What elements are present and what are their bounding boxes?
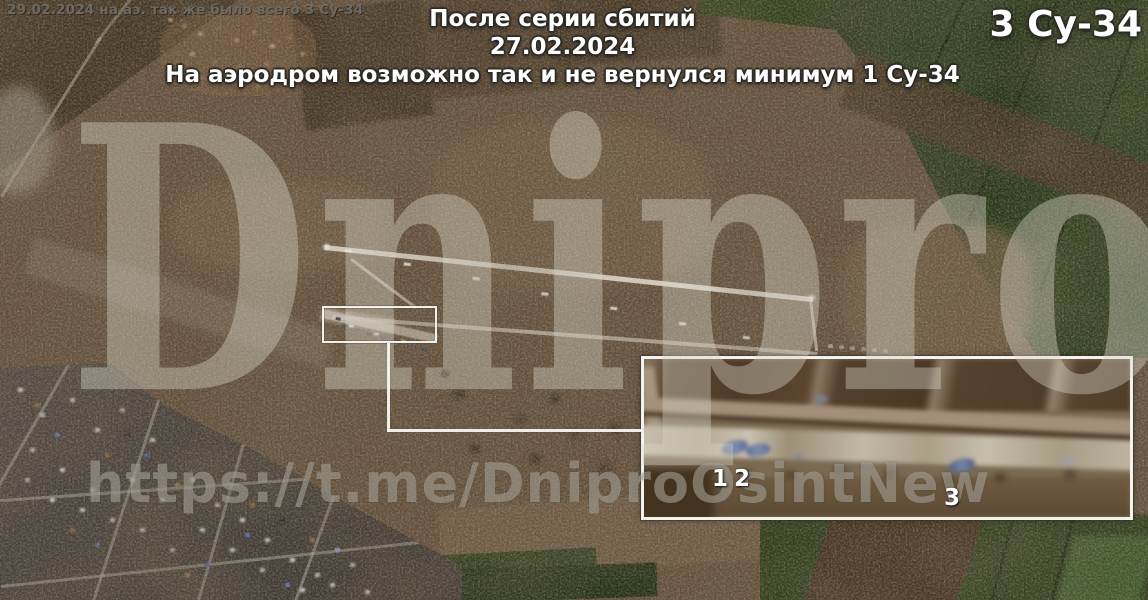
dnipro-watermark: Dnipro [68, 78, 1148, 444]
inset-label-2: 2 [734, 466, 750, 492]
title-line-3: На аэродром возможно так и не вернулся м… [0, 61, 1125, 89]
title-line-2: 27.02.2024 [0, 33, 1125, 61]
telegram-url-watermark: https://t.me/DniproOsintNew [86, 452, 991, 515]
highlight-rectangle [322, 306, 437, 343]
inset-label-1: 1 [712, 466, 728, 492]
satellite-annotated-image: Dnipro https://t.me/DniproOsintNew 29.02… [0, 0, 1148, 600]
callout-line-horizontal [387, 429, 643, 432]
title-line-1: После серии сбитий [0, 5, 1125, 33]
title-block: После серии сбитий 27.02.2024 На аэродро… [0, 5, 1125, 89]
aircraft-count-label: 3 Су-34 [989, 4, 1142, 45]
inset-label-3: 3 [944, 485, 960, 511]
callout-line-vertical [387, 343, 390, 432]
